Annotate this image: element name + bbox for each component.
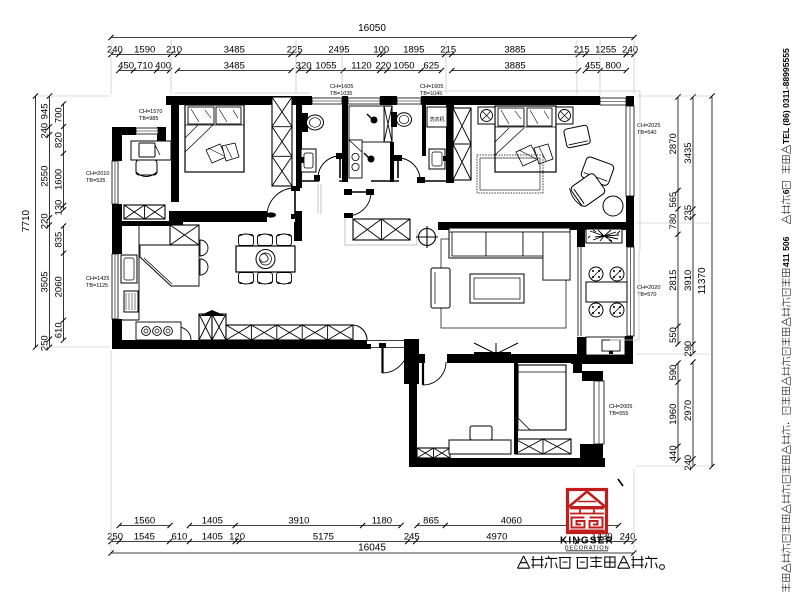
svg-text:1405: 1405 [202, 516, 223, 527]
svg-text:780: 780 [668, 214, 679, 230]
svg-text:CH=1570: CH=1570 [139, 109, 162, 115]
svg-text:5175: 5175 [313, 532, 334, 543]
svg-text:240: 240 [622, 45, 638, 56]
svg-text:3910: 3910 [683, 270, 694, 291]
svg-text:220: 220 [40, 213, 51, 229]
svg-text:450: 450 [118, 61, 134, 72]
svg-text:1405: 1405 [202, 532, 223, 543]
svg-text:3485: 3485 [224, 45, 245, 56]
svg-text:TB=1045: TB=1045 [420, 91, 442, 97]
svg-text:2060: 2060 [54, 276, 65, 297]
svg-text:3505: 3505 [40, 271, 51, 292]
svg-text:6: 6 [781, 189, 791, 194]
svg-text:215: 215 [574, 45, 590, 56]
svg-text:710: 710 [137, 61, 153, 72]
svg-text:.: . [781, 422, 791, 424]
svg-text:3885: 3885 [505, 61, 526, 72]
svg-text:1180: 1180 [372, 516, 392, 527]
svg-text:CH=2025: CH=2025 [637, 123, 660, 129]
svg-text:TB=985: TB=985 [139, 116, 158, 122]
svg-text:TB=1125: TB=1125 [86, 283, 108, 289]
svg-text:250: 250 [107, 532, 123, 543]
svg-text:625: 625 [423, 61, 439, 72]
svg-text:1895: 1895 [403, 45, 424, 56]
svg-text:11370: 11370 [697, 267, 708, 295]
svg-text:1960: 1960 [668, 404, 679, 425]
svg-text:455: 455 [585, 61, 601, 72]
svg-text:洗衣机: 洗衣机 [429, 116, 444, 123]
svg-text:1590: 1590 [134, 45, 155, 56]
svg-text:16050: 16050 [358, 23, 386, 34]
svg-text:215: 215 [440, 45, 456, 56]
svg-text:835: 835 [54, 232, 65, 248]
svg-text:565: 565 [668, 192, 679, 208]
svg-text:2970: 2970 [683, 400, 694, 421]
svg-text:320: 320 [296, 61, 312, 72]
svg-text:1560: 1560 [134, 516, 155, 527]
svg-text:4060: 4060 [501, 516, 522, 527]
svg-text:CH=2005: CH=2005 [609, 404, 632, 410]
svg-text:240: 240 [620, 532, 636, 543]
svg-text:1600: 1600 [54, 169, 65, 190]
svg-text:400: 400 [155, 61, 171, 72]
svg-text:1120: 1120 [351, 61, 371, 72]
svg-text:240: 240 [107, 45, 123, 56]
svg-text:TB=570: TB=570 [637, 292, 656, 298]
svg-text:130: 130 [54, 200, 65, 216]
svg-text:945: 945 [40, 103, 51, 119]
svg-text:235: 235 [683, 205, 694, 221]
svg-text:2815: 2815 [668, 270, 679, 291]
svg-text:120: 120 [229, 532, 245, 543]
svg-text:2495: 2495 [328, 45, 349, 56]
svg-text:440: 440 [668, 445, 679, 461]
svg-text:820: 820 [54, 132, 65, 148]
svg-text:1255: 1255 [595, 45, 616, 56]
svg-text:CH=2010: CH=2010 [86, 171, 109, 177]
svg-text:3435: 3435 [683, 142, 694, 163]
svg-text:240: 240 [40, 123, 51, 139]
svg-text:245: 245 [404, 532, 420, 543]
svg-text:TEL (86) 0311-88995555: TEL (86) 0311-88995555 [781, 48, 791, 144]
svg-text:700: 700 [54, 107, 65, 123]
svg-text:4970: 4970 [486, 532, 507, 543]
svg-text:TB=1035: TB=1035 [330, 91, 352, 97]
svg-text:610: 610 [54, 322, 65, 338]
svg-text:7710: 7710 [21, 209, 32, 232]
svg-text:865: 865 [423, 516, 439, 527]
svg-text:3885: 3885 [504, 45, 525, 56]
svg-text:CH=1425: CH=1425 [86, 276, 109, 282]
svg-text:550: 550 [668, 327, 679, 343]
svg-text:1545: 1545 [134, 532, 155, 543]
svg-text:220: 220 [375, 61, 391, 72]
svg-text:1055: 1055 [315, 61, 336, 72]
svg-text:2550: 2550 [40, 166, 51, 187]
svg-text:TB=555: TB=555 [609, 411, 628, 417]
svg-text:CH=1605: CH=1605 [420, 84, 443, 90]
svg-text:2870: 2870 [668, 133, 679, 154]
svg-text:800: 800 [605, 61, 621, 72]
svg-text:16045: 16045 [358, 543, 386, 554]
svg-text:3910: 3910 [288, 516, 309, 527]
svg-text:610: 610 [171, 532, 187, 543]
svg-text:1050: 1050 [393, 61, 414, 72]
svg-text:225: 225 [287, 45, 303, 56]
svg-text:210: 210 [166, 45, 182, 56]
svg-text:CH=2020: CH=2020 [637, 285, 660, 291]
svg-text:100: 100 [373, 45, 389, 56]
svg-text:TB=535: TB=535 [86, 178, 105, 184]
svg-text:3485: 3485 [224, 61, 245, 72]
svg-text:411 506: 411 506 [781, 236, 791, 267]
svg-text:590: 590 [668, 365, 679, 381]
svg-text:250: 250 [40, 335, 51, 351]
svg-text:240: 240 [683, 455, 694, 471]
